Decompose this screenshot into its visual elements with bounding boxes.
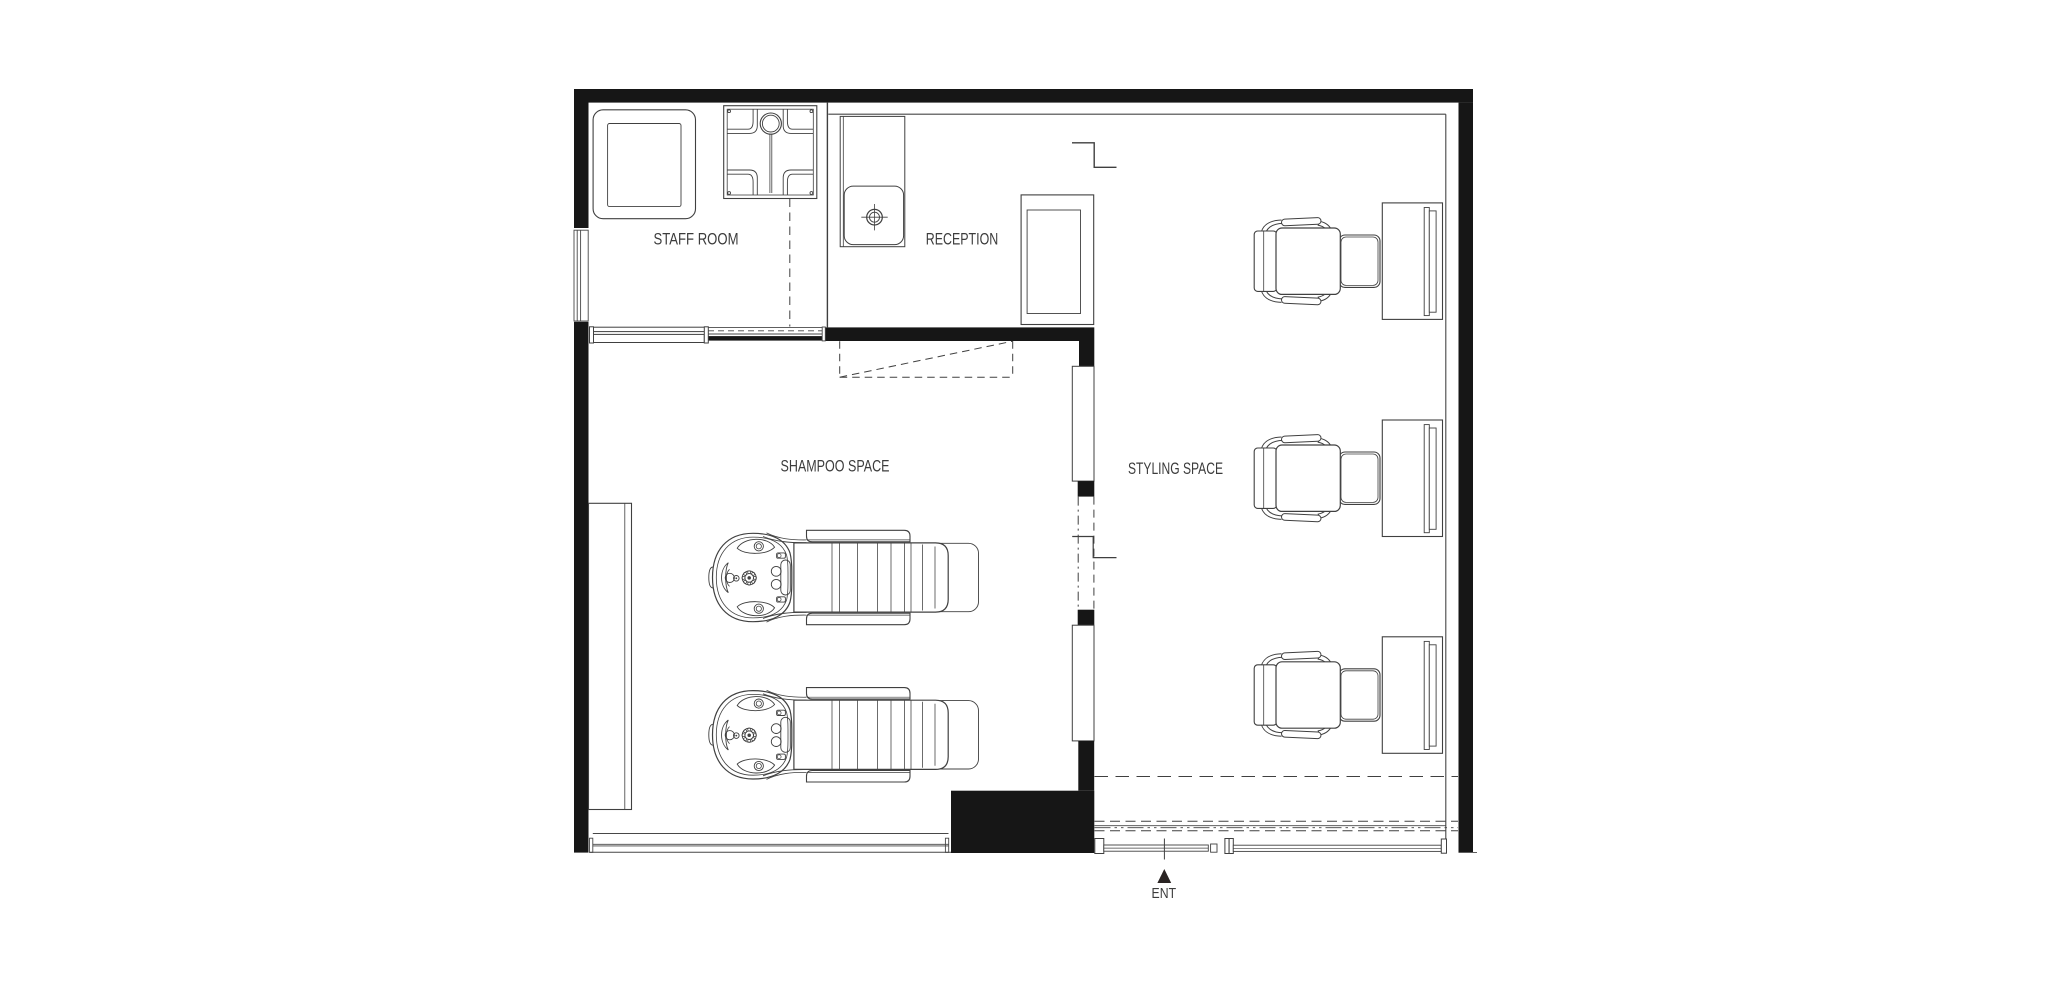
- svg-text:ENT: ENT: [1152, 885, 1177, 902]
- svg-text:RECEPTION: RECEPTION: [926, 230, 999, 249]
- svg-text:STYLING SPACE: STYLING SPACE: [1128, 459, 1223, 478]
- svg-text:STAFF ROOM: STAFF ROOM: [654, 230, 739, 249]
- svg-text:SHAMPOO SPACE: SHAMPOO SPACE: [781, 457, 890, 476]
